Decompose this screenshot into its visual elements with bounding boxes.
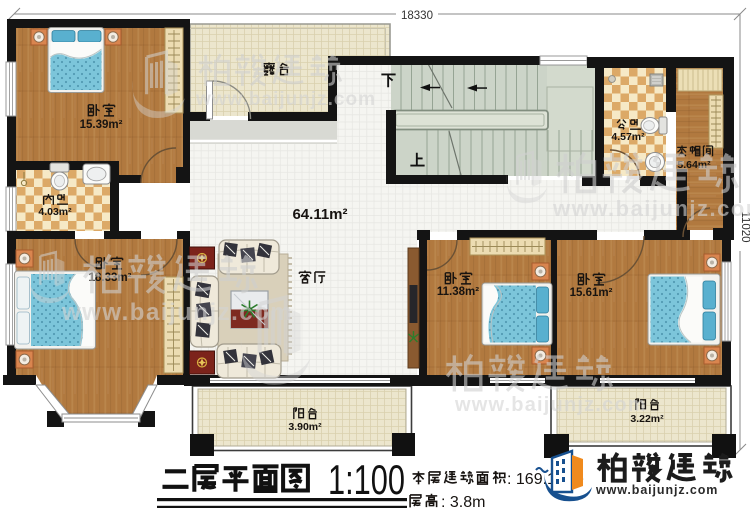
svg-text:1:100: 1:100 bbox=[328, 456, 405, 503]
svg-text:www.baijunjz.com: www.baijunjz.com bbox=[195, 89, 376, 110]
svg-text:www.baijunjz.com: www.baijunjz.com bbox=[552, 196, 750, 221]
svg-text:11.38m²: 11.38m² bbox=[437, 286, 479, 298]
svg-text:18330: 18330 bbox=[401, 10, 433, 22]
svg-text:15.39m²: 15.39m² bbox=[80, 119, 123, 131]
svg-text:www.baijunjz.com: www.baijunjz.com bbox=[595, 483, 718, 497]
svg-text:4.03m²: 4.03m² bbox=[38, 206, 72, 218]
svg-text:3.90m²: 3.90m² bbox=[288, 421, 322, 433]
svg-text:4.57m²: 4.57m² bbox=[611, 131, 645, 143]
svg-text:www.baijunjz.com: www.baijunjz.com bbox=[454, 394, 647, 416]
svg-text:64.11m²: 64.11m² bbox=[292, 206, 347, 223]
svg-text:15.61m²: 15.61m² bbox=[570, 287, 613, 299]
svg-text:: 3.8m: : 3.8m bbox=[441, 494, 485, 511]
